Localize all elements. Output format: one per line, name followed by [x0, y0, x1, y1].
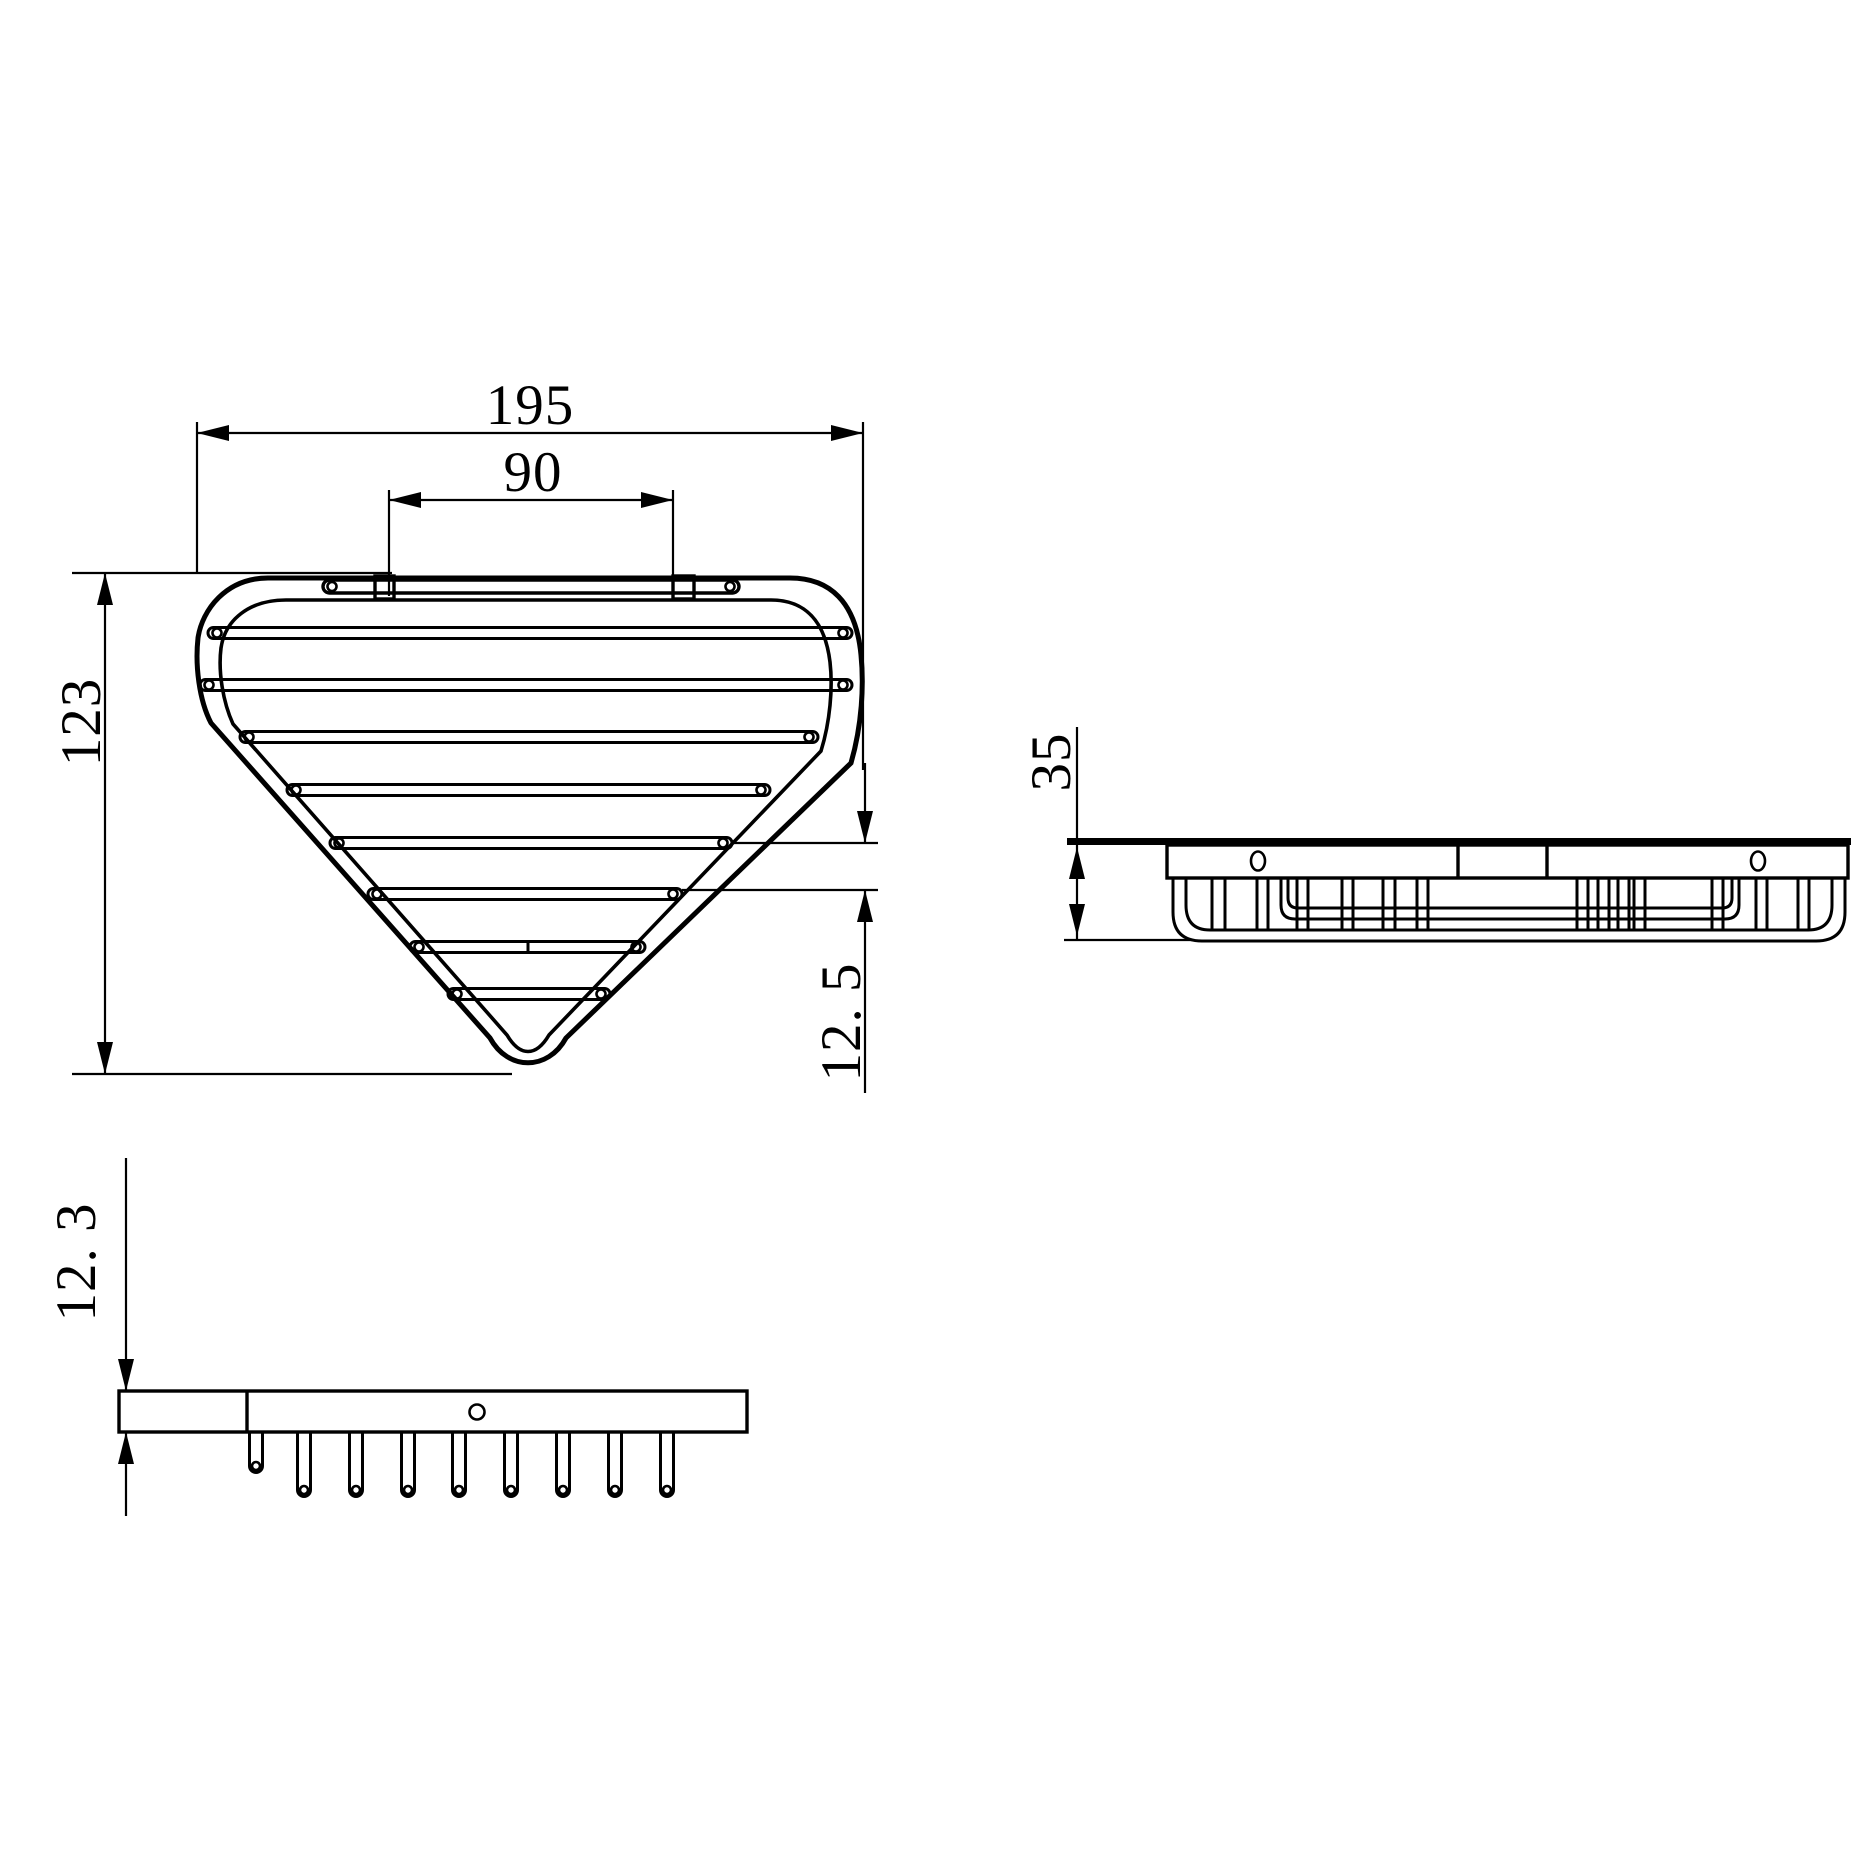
basket-inner-outline — [220, 600, 831, 1052]
dim-label-overall-width: 195 — [486, 374, 575, 437]
top-view: 195 90 123 12. 5 — [50, 374, 878, 1093]
basket-wires-top — [200, 628, 852, 1000]
dim-label-overall-depth: 123 — [50, 678, 113, 767]
drawing-sheet: 195 90 123 12. 5 — [0, 0, 1875, 1875]
screw-hole-right — [1751, 852, 1765, 871]
mounting-rod — [323, 580, 739, 593]
rail-prongs — [250, 1432, 674, 1497]
mounting-plate-strip — [1167, 845, 1848, 878]
dim-label-side-height: 35 — [1020, 733, 1083, 792]
rod-end-left — [328, 582, 337, 591]
dimension-overall-depth: 123 — [50, 573, 512, 1074]
screw-hole-left — [1251, 852, 1265, 871]
mounting-rail — [119, 1391, 747, 1432]
side-view: 35 — [1020, 727, 1851, 941]
dim-label-wire-gap: 12. 5 — [810, 963, 873, 1082]
rear-wire-lower — [1281, 878, 1739, 919]
rail-view: 12. 3 — [45, 1158, 747, 1516]
dimension-rail-thickness: 12. 3 — [45, 1158, 134, 1516]
dim-label-bracket-spacing: 90 — [504, 441, 563, 504]
dim-label-rail-thickness: 12. 3 — [45, 1203, 108, 1322]
basket-wires-side — [1212, 878, 1809, 930]
dimension-wire-gap: 12. 5 — [682, 763, 878, 1093]
technical-drawing: 195 90 123 12. 5 — [0, 0, 1875, 1875]
rail-screw-hole — [470, 1405, 485, 1420]
rear-wire-upper — [1288, 878, 1732, 908]
dimension-side-height: 35 — [1020, 727, 1192, 940]
rod-end-right — [726, 582, 735, 591]
dimension-bracket-spacing: 90 — [389, 441, 673, 596]
basket-outer-outline — [197, 578, 862, 1063]
